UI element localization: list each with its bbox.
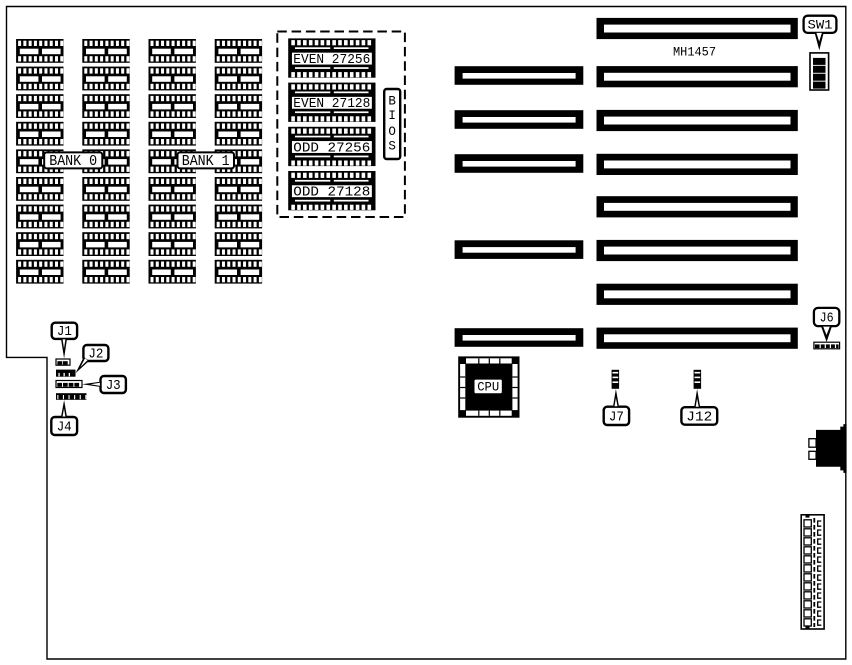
svg-text:SW1: SW1 [808,17,833,32]
svg-text:J1: J1 [57,324,72,340]
svg-text:BANK 1: BANK 1 [182,153,230,170]
svg-text:J12: J12 [686,409,712,425]
svg-text:BANK 0: BANK 0 [49,153,97,170]
svg-text:O: O [388,125,396,139]
svg-text:J6: J6 [820,310,834,326]
svg-text:ODD 27128: ODD 27128 [293,185,370,201]
svg-text:J2: J2 [88,346,103,362]
svg-text:EVEN 27256: EVEN 27256 [293,52,370,68]
svg-text:J4: J4 [57,419,72,435]
svg-text:EVEN 27128: EVEN 27128 [293,96,370,112]
svg-text:J7: J7 [609,409,624,425]
svg-text:CPU: CPU [477,380,499,395]
svg-text:B: B [388,95,396,109]
svg-text:ODD 27256: ODD 27256 [293,140,370,156]
svg-text:S: S [388,140,396,154]
svg-text:I: I [388,109,396,123]
svg-text:MH1457: MH1457 [673,45,716,60]
svg-text:J3: J3 [106,378,121,394]
